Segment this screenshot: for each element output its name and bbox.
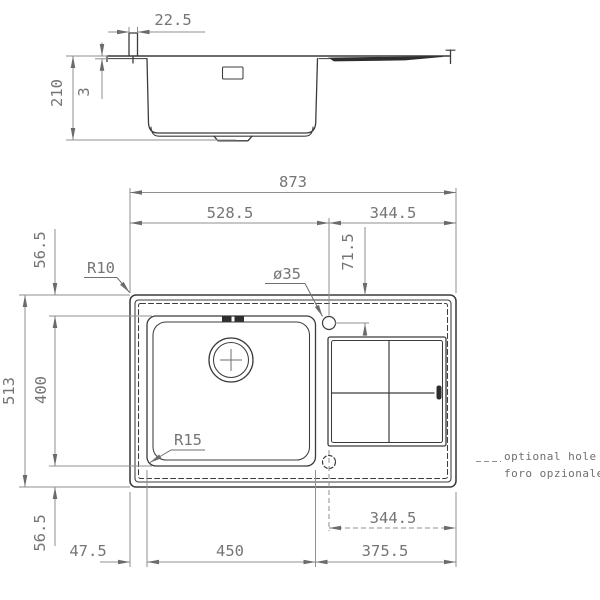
- dim-right-section-344-5-top: 344.5: [329, 204, 456, 223]
- legend-optional-hole-it: foro opzionale: [504, 467, 600, 480]
- side-view: 22.5 3 210: [48, 11, 455, 141]
- raised-edge-profile: [129, 33, 138, 56]
- dim-label-873: 873: [279, 173, 307, 191]
- overflow-slot-mark: [235, 316, 245, 322]
- dim-label-513: 513: [0, 377, 18, 405]
- dim-label-56-5-top: 56.5: [31, 231, 49, 268]
- drainer-drain-mark: [437, 386, 442, 400]
- dim-top-margin-56-5: 56.5: [31, 229, 55, 295]
- overflow-slot-section: [223, 67, 244, 79]
- dim-label-22-5: 22.5: [154, 11, 191, 29]
- dim-label-528-5: 528.5: [207, 204, 254, 222]
- dim-label-r10: R10: [87, 259, 115, 277]
- dim-bowl-front-400: 400: [32, 316, 152, 466]
- leader-bowl-radius-r15: R15: [150, 431, 205, 463]
- dim-label-400: 400: [32, 376, 50, 404]
- leader-corner-radius-r10: R10: [84, 259, 130, 293]
- optional-hole-legend: optional hole foro opzionale: [476, 450, 600, 480]
- dim-depth-210: 210: [48, 56, 236, 140]
- dim-label-344-5-bottom: 344.5: [370, 509, 417, 527]
- dim-label-o35: ø35: [273, 265, 301, 283]
- dim-label-r15: R15: [174, 431, 202, 449]
- dim-left-section-528-5: 528.5: [130, 204, 329, 223]
- dim-rim-thickness-3: 3: [75, 43, 108, 100]
- dim-label-56-5-bottom: 56.5: [31, 514, 49, 551]
- undermount-cut-line: [139, 304, 448, 479]
- dim-total-depth-513: 513: [0, 295, 130, 487]
- dim-label-344-5-top: 344.5: [370, 204, 417, 222]
- dim-label-210: 210: [48, 79, 66, 107]
- plan-view: 873 528.5 344.5 71.5 ø35 R10: [0, 173, 600, 567]
- drawing-canvas: 22.5 3 210: [0, 0, 600, 600]
- sink-rim-outer: [130, 295, 456, 487]
- drainer-panel-inner: [332, 341, 443, 443]
- drainer-panel-outer: [328, 337, 446, 446]
- side-profile: [107, 33, 455, 141]
- dim-edge-width-22-5: 22.5: [108, 11, 205, 33]
- leader-hole-diameter: ø35: [265, 265, 323, 317]
- overflow-slot-mark: [222, 316, 232, 322]
- bowl-section-inner: [147, 59, 318, 133]
- dim-label-47-5: 47.5: [69, 542, 106, 560]
- plan-outline: [130, 295, 456, 531]
- drainboard-section: [328, 56, 444, 61]
- dim-bottom-margin-56-5: 56.5: [31, 487, 55, 552]
- sink-rim-inner: [135, 300, 451, 482]
- tap-hole: [323, 317, 336, 330]
- dim-label-71-5: 71.5: [339, 233, 357, 270]
- dim-optional-hole-344-5: 344.5: [329, 509, 456, 528]
- dim-label-3: 3: [75, 87, 93, 96]
- bowl-section-outer: [151, 127, 313, 136]
- sink-technical-drawing: 22.5 3 210: [0, 0, 600, 600]
- drain-center-cross: [220, 349, 242, 371]
- legend-optional-hole-en: optional hole: [504, 450, 597, 463]
- dim-label-450: 450: [216, 542, 244, 560]
- dim-label-375-5: 375.5: [362, 542, 409, 560]
